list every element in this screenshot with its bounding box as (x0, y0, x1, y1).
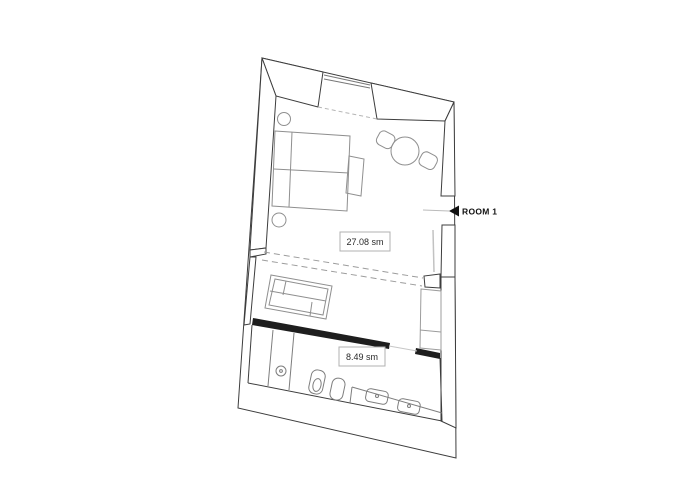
table (391, 137, 419, 165)
wall-top-right (371, 83, 454, 121)
stool (278, 113, 291, 126)
bed-center-line (274, 169, 349, 173)
wall-right-lower (441, 277, 456, 428)
sink-drain (376, 395, 379, 398)
left-arrow-icon (449, 206, 459, 217)
wall-stub (424, 274, 440, 288)
stool (272, 213, 286, 227)
window (318, 75, 377, 119)
wall-right-mid (441, 225, 455, 277)
room-marker: ROOM 1 (423, 206, 497, 217)
sink-drain (408, 405, 411, 408)
shower-screen (289, 333, 294, 390)
radiator (433, 230, 434, 272)
area-label-room1: 27.08 sm (346, 237, 383, 247)
floorplan-canvas: 27.08 sm 8.49 sm ROOM 1 (0, 0, 700, 500)
chair (375, 129, 397, 150)
floorplan-page: 27.08 sm 8.49 sm ROOM 1 (0, 0, 700, 500)
chair (417, 150, 439, 171)
closet (420, 289, 441, 350)
shower-drain (276, 366, 286, 376)
shower-drain-dot (280, 370, 283, 373)
bidet (329, 377, 346, 401)
marker-leader-line (423, 210, 449, 211)
furniture (265, 113, 441, 351)
vanity-counter (352, 387, 442, 413)
toilet-bowl (312, 378, 323, 392)
kitchenette-unit-inner (269, 279, 328, 315)
wall-left-step (250, 248, 266, 257)
kitchenette-unit (265, 275, 332, 319)
closet-shelf-line (420, 330, 441, 332)
marker-label: ROOM 1 (462, 207, 497, 217)
vanity-counter-end (350, 387, 352, 403)
window-reveal-edge (318, 107, 377, 119)
area-label-bathroom: 8.49 sm (346, 352, 378, 362)
shower-screen (268, 330, 273, 386)
